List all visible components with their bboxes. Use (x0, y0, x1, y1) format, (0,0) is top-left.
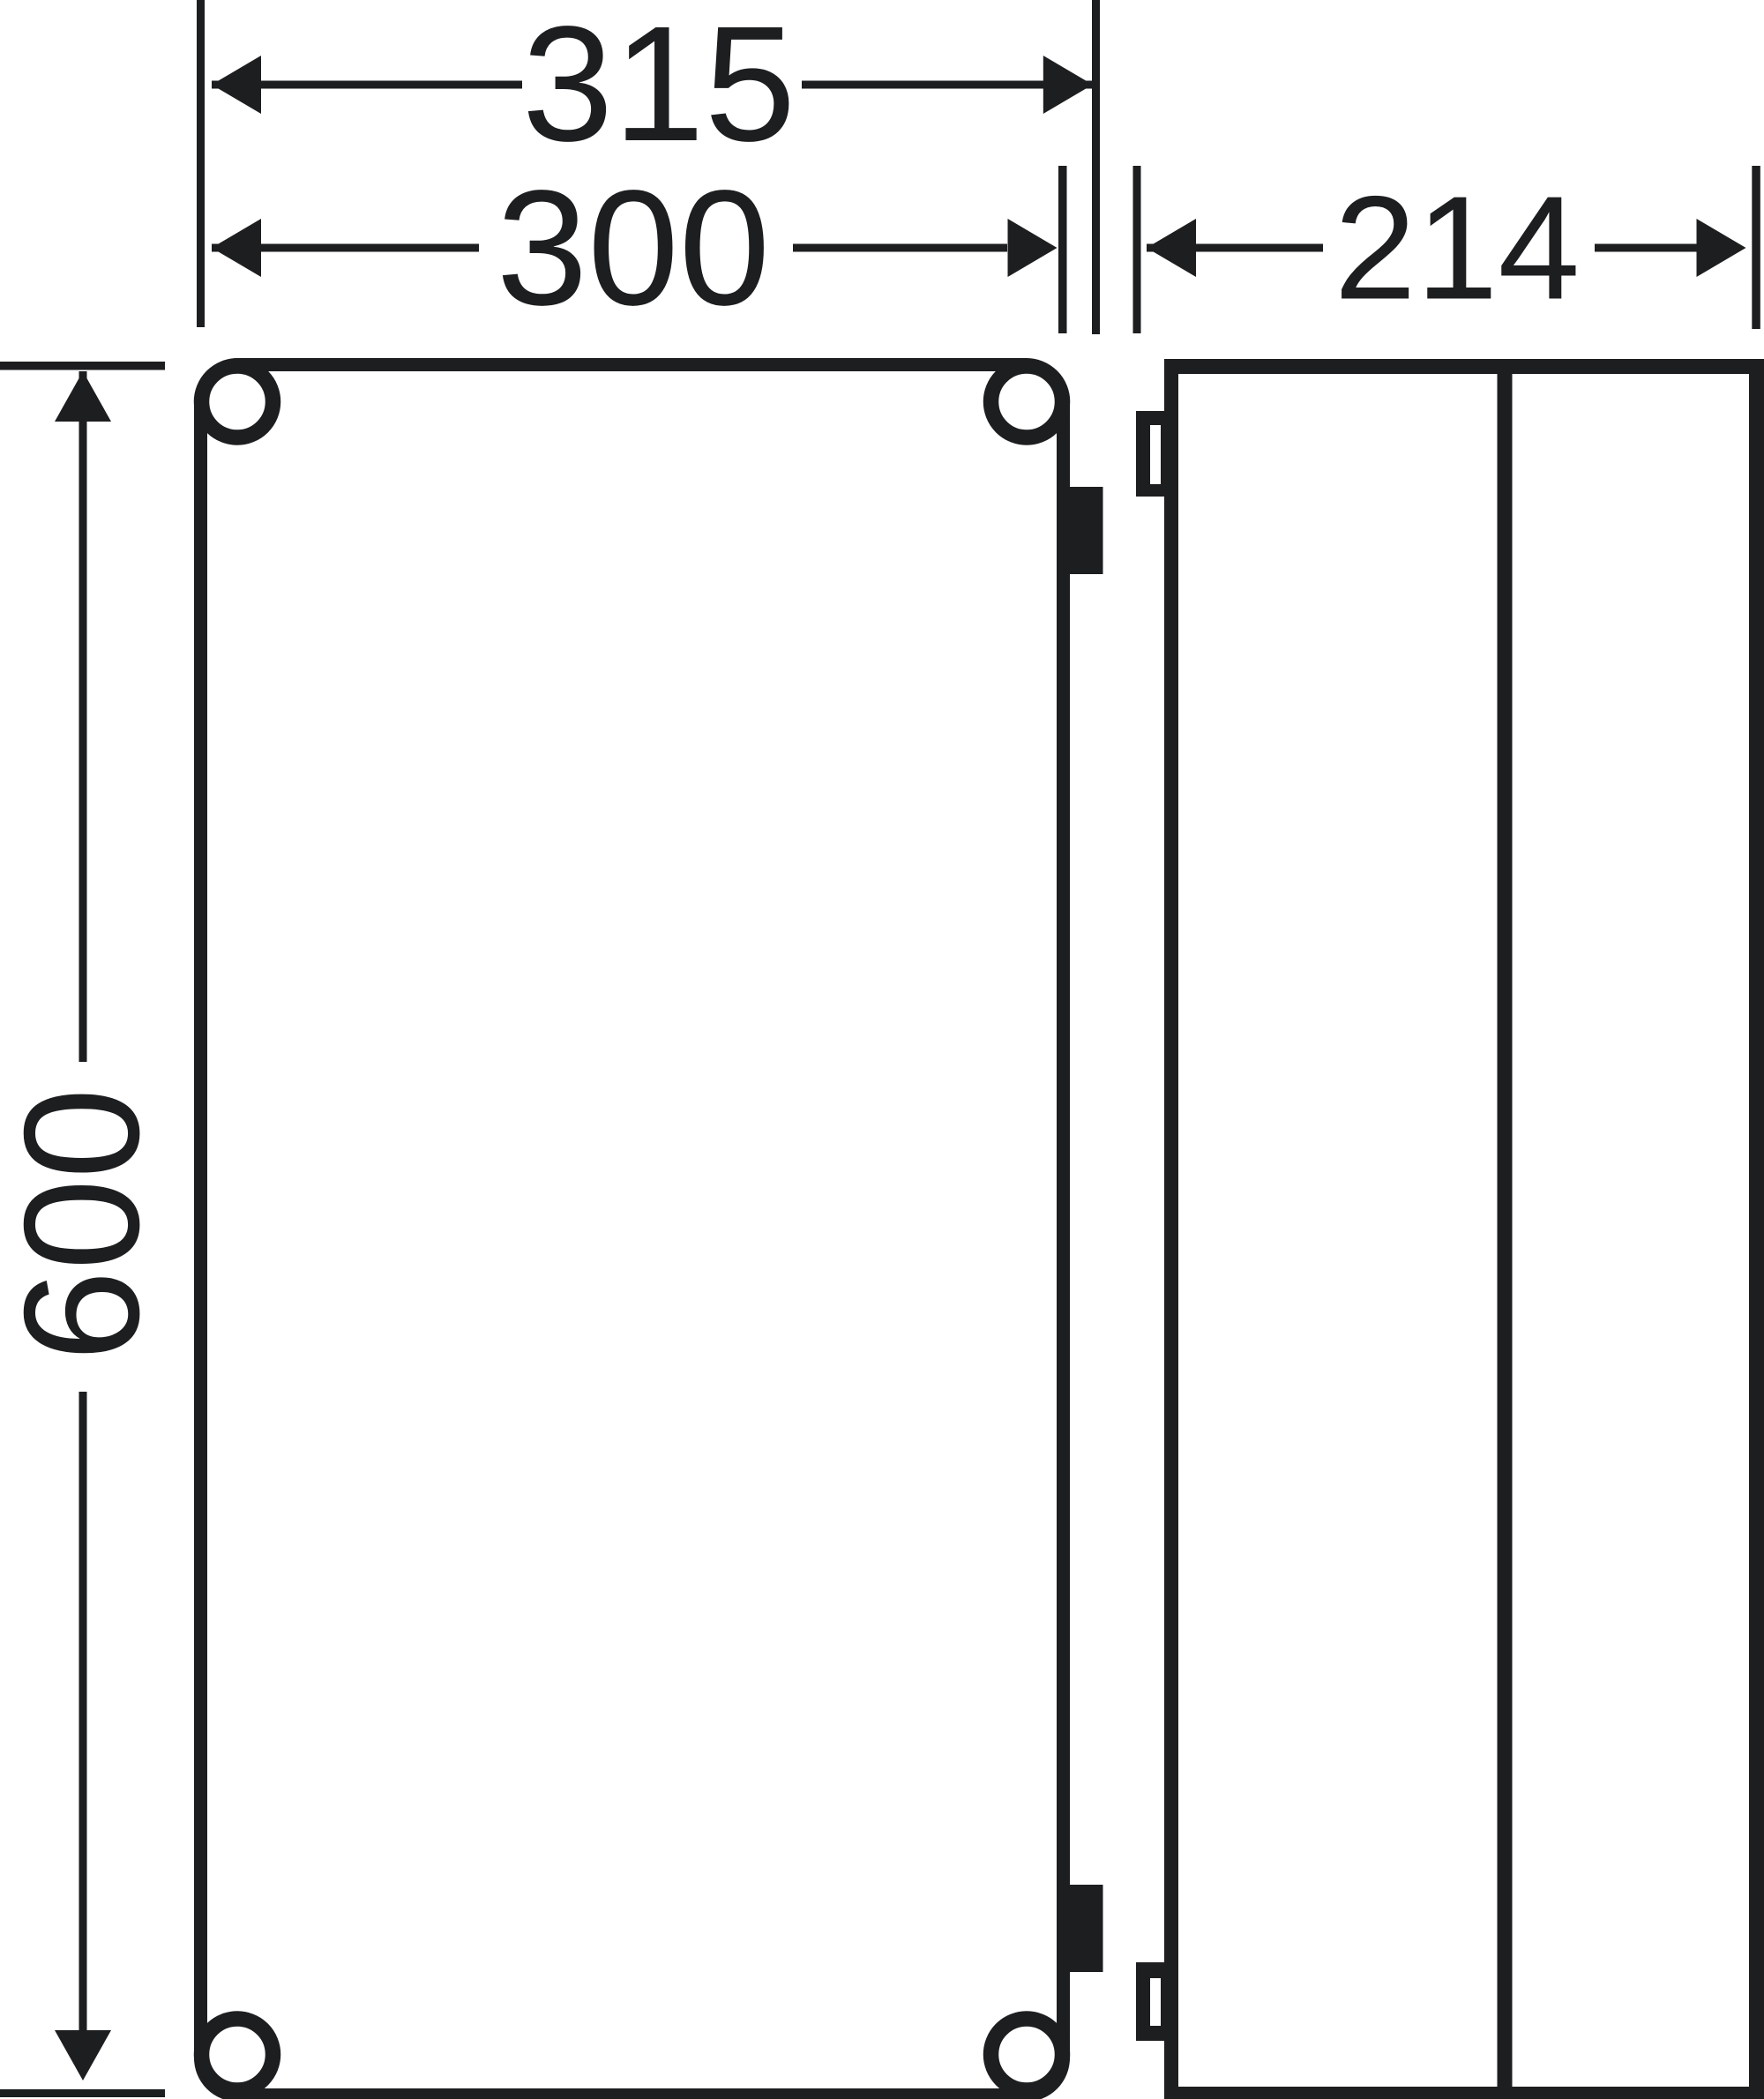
svg-text:315: 315 (522, 0, 796, 176)
svg-text:300: 300 (497, 157, 770, 340)
svg-text:600: 600 (0, 1087, 174, 1361)
svg-text:214: 214 (1334, 167, 1581, 331)
